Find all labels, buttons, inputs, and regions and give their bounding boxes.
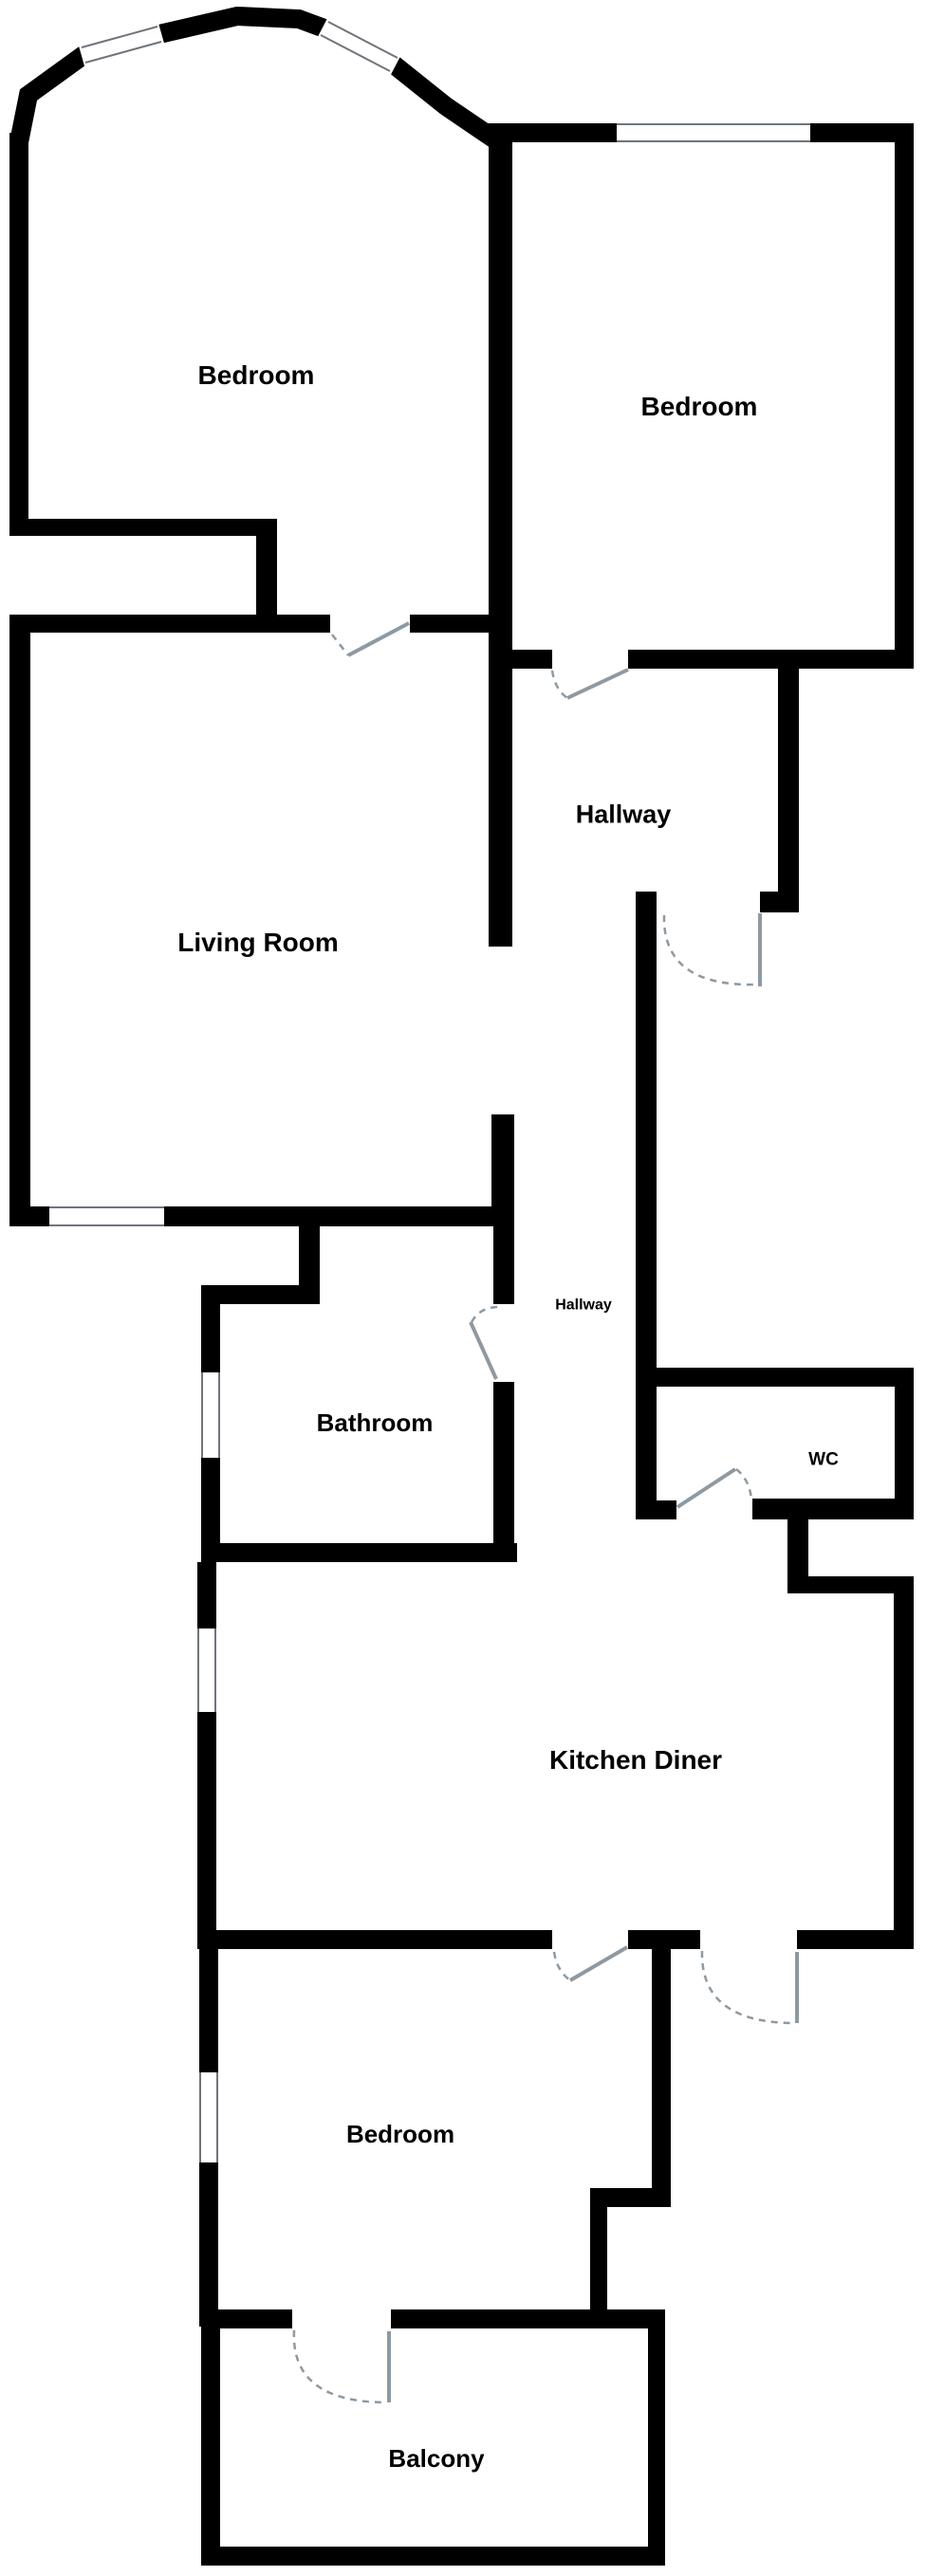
- window-gap: [617, 123, 810, 142]
- wall-segment: [256, 536, 277, 623]
- wall-segment: [760, 892, 799, 912]
- room-label-bedroom-top-left: Bedroom: [198, 360, 315, 390]
- room-label-bedroom-bottom: Bedroom: [346, 2120, 454, 2148]
- wall-segment: [164, 1206, 491, 1226]
- wall-segment: [636, 1500, 676, 1519]
- wall-segment: [491, 1114, 514, 1226]
- room-label-living-room: Living Room: [177, 928, 339, 957]
- wall-segment: [9, 615, 30, 1226]
- wall-segment: [590, 2207, 607, 2309]
- room-label-kitchen-diner: Kitchen Diner: [549, 1745, 722, 1775]
- window-gap: [199, 2072, 218, 2162]
- wall-segment: [628, 650, 914, 669]
- floor-background: [0, 0, 926, 2576]
- wall-segment: [9, 615, 330, 633]
- wall-segment: [787, 1519, 808, 1593]
- wall-segment: [201, 2327, 220, 2566]
- wall-segment: [197, 1930, 552, 1949]
- wall-segment: [201, 1304, 220, 1372]
- window-gap: [201, 1372, 220, 1458]
- wall-segment: [797, 1930, 914, 1949]
- window-gap: [49, 1206, 164, 1226]
- room-label-hallway-lower: Hallway: [555, 1297, 612, 1314]
- floorplan-page: BedroomBedroomHallwayLiving RoomHallwayB…: [0, 0, 926, 2576]
- wall-segment: [197, 1562, 216, 1628]
- wall-segment: [197, 1712, 216, 1930]
- room-label-balcony: Balcony: [388, 2444, 485, 2473]
- wall-segment: [9, 133, 28, 536]
- wall-segment: [199, 2162, 218, 2327]
- floorplan-canvas: BedroomBedroomHallwayLiving RoomHallwayB…: [0, 0, 926, 2576]
- room-label-hallway-upper: Hallway: [576, 800, 672, 828]
- wall-segment: [299, 1226, 320, 1295]
- wall-segment: [808, 1576, 895, 1593]
- wall-segment: [489, 133, 512, 947]
- wall-segment: [636, 892, 657, 1519]
- wall-segment: [201, 1543, 517, 1562]
- wall-segment: [752, 1499, 914, 1519]
- wall-segment: [628, 1930, 700, 1949]
- wall-segment: [493, 1226, 514, 1304]
- wall-segment: [487, 123, 620, 142]
- wall-segment: [201, 2547, 665, 2566]
- wall-segment: [895, 1368, 914, 1519]
- wall-segment: [894, 1576, 914, 1949]
- wall-segment: [199, 1949, 218, 2072]
- wall-segment: [652, 1949, 671, 2207]
- room-label-wc: WC: [808, 1450, 839, 1470]
- wall-segment: [655, 1368, 914, 1387]
- wall-segment: [218, 2309, 292, 2328]
- wall-segment: [410, 615, 491, 633]
- wall-segment: [493, 1382, 514, 1558]
- wall-segment: [895, 123, 914, 669]
- wall-segment: [9, 519, 277, 536]
- room-label-bathroom: Bathroom: [317, 1408, 434, 1437]
- wall-segment: [648, 2309, 665, 2566]
- wall-segment: [391, 2309, 664, 2328]
- room-label-bedroom-top-right: Bedroom: [641, 392, 758, 421]
- wall-segment: [778, 669, 799, 892]
- wall-segment: [590, 2188, 671, 2207]
- wall-segment: [512, 650, 552, 669]
- wall-segment: [201, 1285, 320, 1304]
- window-gap: [197, 1628, 216, 1712]
- wall-segment: [9, 1206, 49, 1226]
